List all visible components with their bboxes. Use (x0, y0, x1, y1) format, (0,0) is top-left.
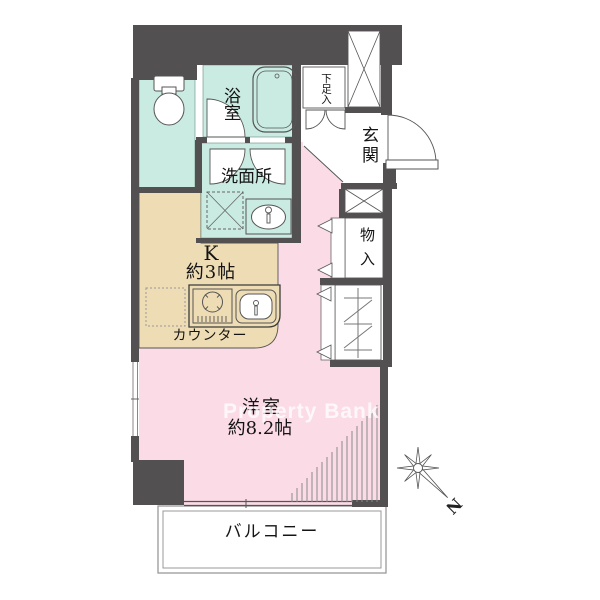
compass-icon (397, 447, 449, 499)
entrance-door-leaf (386, 160, 438, 169)
storage-label: 物入 (353, 222, 375, 280)
kitchen-size-label: 約3帖 (161, 263, 261, 284)
bathroom-label: 浴室 (213, 80, 239, 128)
main-room-size-label: 約8.2帖 (200, 419, 320, 440)
storage-door-strip (331, 218, 345, 278)
entrance-door-swing (388, 115, 436, 163)
compass-north-label: N (442, 494, 466, 518)
floor-plan-svg: N (0, 0, 600, 600)
toilet-icon (154, 76, 184, 125)
entrance-label: 玄関 (353, 120, 377, 172)
counter-label: カウンター (158, 328, 262, 344)
shoe-cabinet-label: 下足入 (316, 69, 332, 109)
balcony-label: バルコニー (211, 523, 333, 543)
main-room-name-label: 洋室 (212, 398, 312, 419)
washroom-label: 洗面所 (201, 168, 292, 188)
floor-plan: N 浴室 洗面所 下足入 玄関 物入 K 約3帖 カウンター 洋室 約8.2帖 … (0, 0, 600, 600)
